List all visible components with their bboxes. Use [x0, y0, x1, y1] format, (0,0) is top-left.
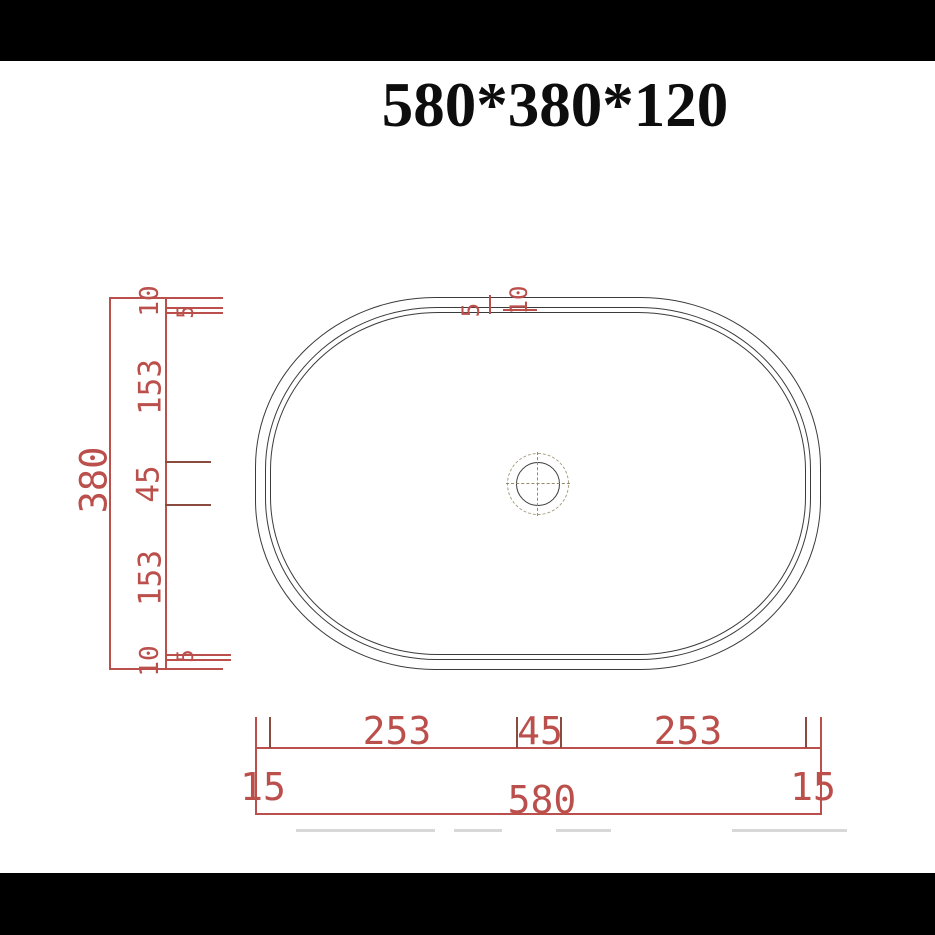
dim-label-15-left: 15: [240, 768, 286, 806]
extension-tick: [165, 504, 211, 506]
dim-label-5-bottom: 5: [176, 649, 198, 662]
extension-tick: [109, 668, 223, 670]
letterbox-bottom: [0, 873, 935, 935]
dim-label-45-horizontal: 45: [517, 712, 563, 750]
dim-label-253-right: 253: [654, 712, 723, 750]
extension-tick: [805, 717, 807, 748]
watermark-fragment: [454, 829, 502, 832]
drawing-title: 580*380*120: [340, 74, 770, 137]
drain-centerline-horizontal: [506, 483, 570, 484]
extension-tick: [109, 297, 223, 299]
watermark-fragment: [556, 829, 611, 832]
dim-label-5-top: 5: [176, 305, 198, 318]
extension-tick: [165, 461, 211, 463]
rim-gap-label-10: 10: [507, 286, 531, 315]
dim-label-253-left: 253: [363, 712, 432, 750]
dim-label-10-bottom: 10: [137, 645, 163, 676]
dim-label-153-lower: 153: [136, 550, 167, 606]
rim-dim-tick: [489, 295, 491, 314]
dim-label-45-vertical: 45: [134, 465, 165, 502]
rim-gap-label-5: 5: [459, 303, 483, 317]
extension-tick: [269, 717, 271, 748]
technical-drawing-canvas: 580*380*120 10 5 153 45 153 5 10 380 5 1…: [0, 0, 935, 935]
dim-label-153-upper: 153: [136, 359, 167, 415]
drain-centerline-vertical: [537, 452, 538, 516]
dim-label-15-right: 15: [790, 768, 836, 806]
dim-label-overall-580: 580: [508, 781, 577, 819]
dim-label-overall-380: 380: [76, 447, 113, 514]
watermark-fragment: [732, 829, 847, 832]
dim-label-10-top: 10: [137, 285, 163, 316]
letterbox-top: [0, 0, 935, 61]
drain-circle: [516, 462, 560, 506]
watermark-fragment: [296, 829, 435, 832]
